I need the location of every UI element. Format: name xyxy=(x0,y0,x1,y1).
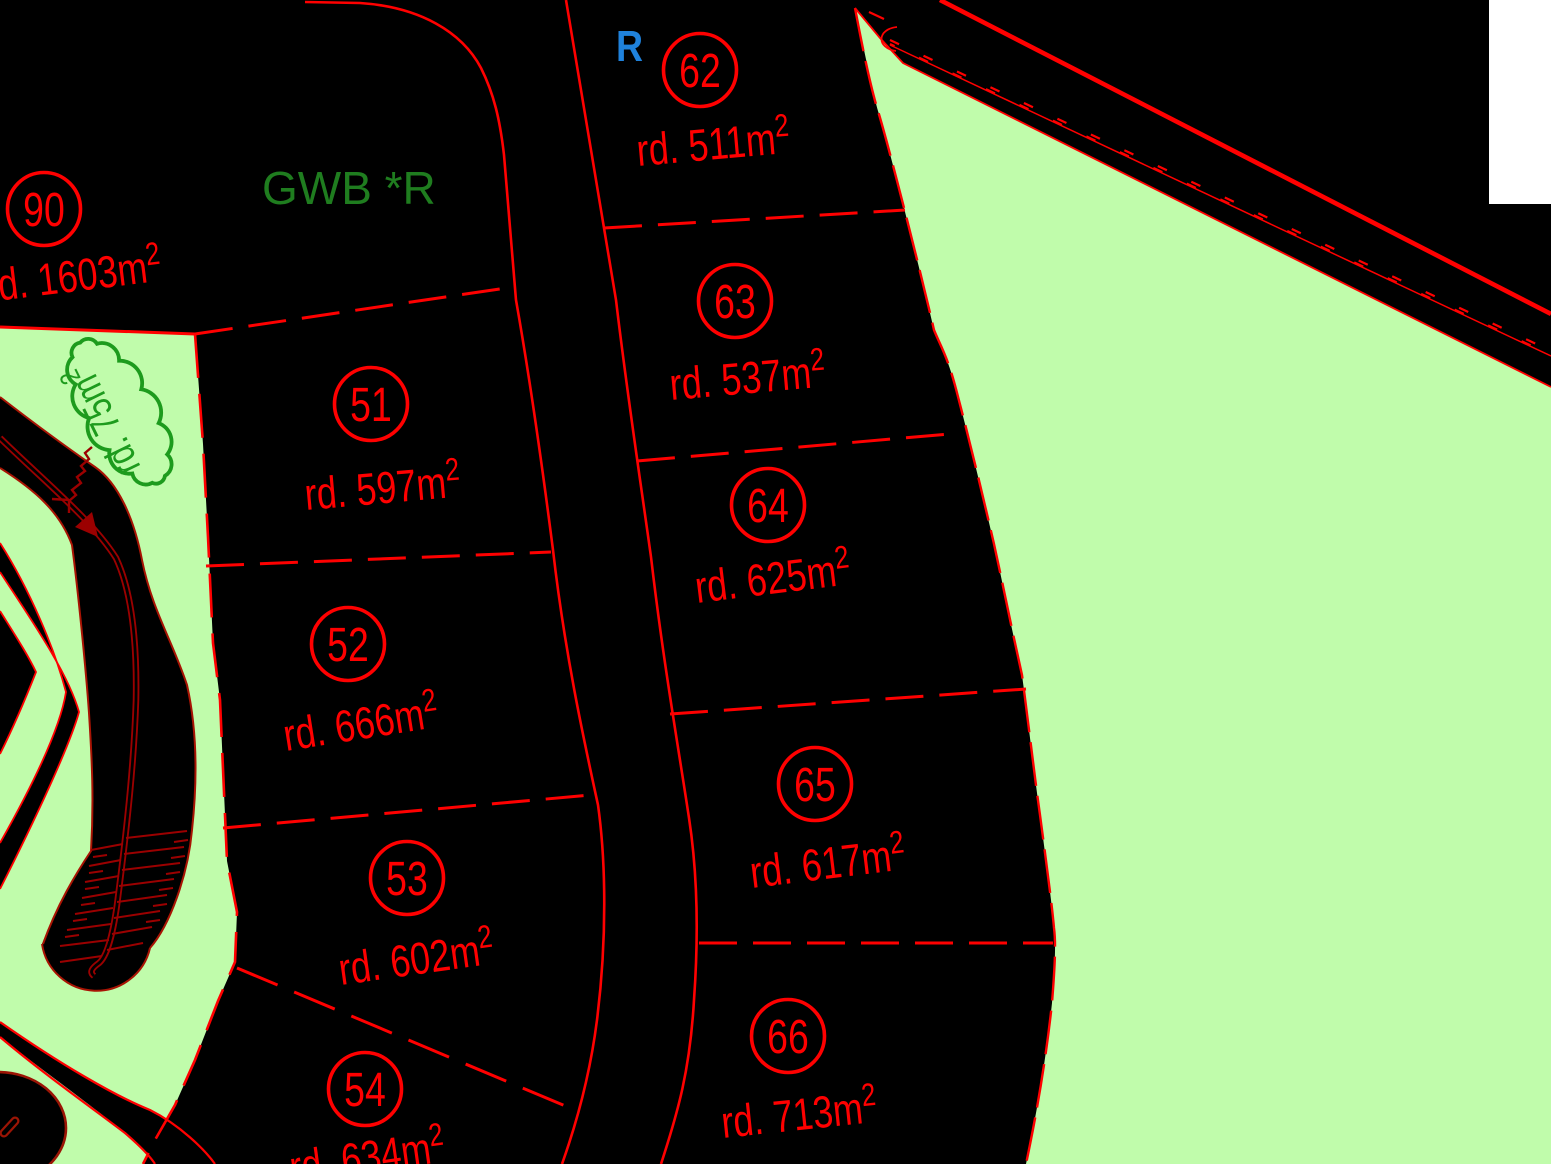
svg-text:52: 52 xyxy=(327,619,369,673)
svg-text:51: 51 xyxy=(350,379,392,433)
svg-text:63: 63 xyxy=(714,276,756,330)
svg-text:64: 64 xyxy=(747,480,789,534)
svg-text:53: 53 xyxy=(386,853,428,907)
svg-text:R: R xyxy=(616,21,643,71)
svg-text:66: 66 xyxy=(767,1011,809,1065)
svg-text:62: 62 xyxy=(679,45,721,99)
svg-text:90: 90 xyxy=(23,184,65,238)
svg-text:54: 54 xyxy=(344,1064,386,1118)
svg-text:65: 65 xyxy=(794,759,836,813)
svg-text:GWB *R: GWB *R xyxy=(262,162,436,214)
